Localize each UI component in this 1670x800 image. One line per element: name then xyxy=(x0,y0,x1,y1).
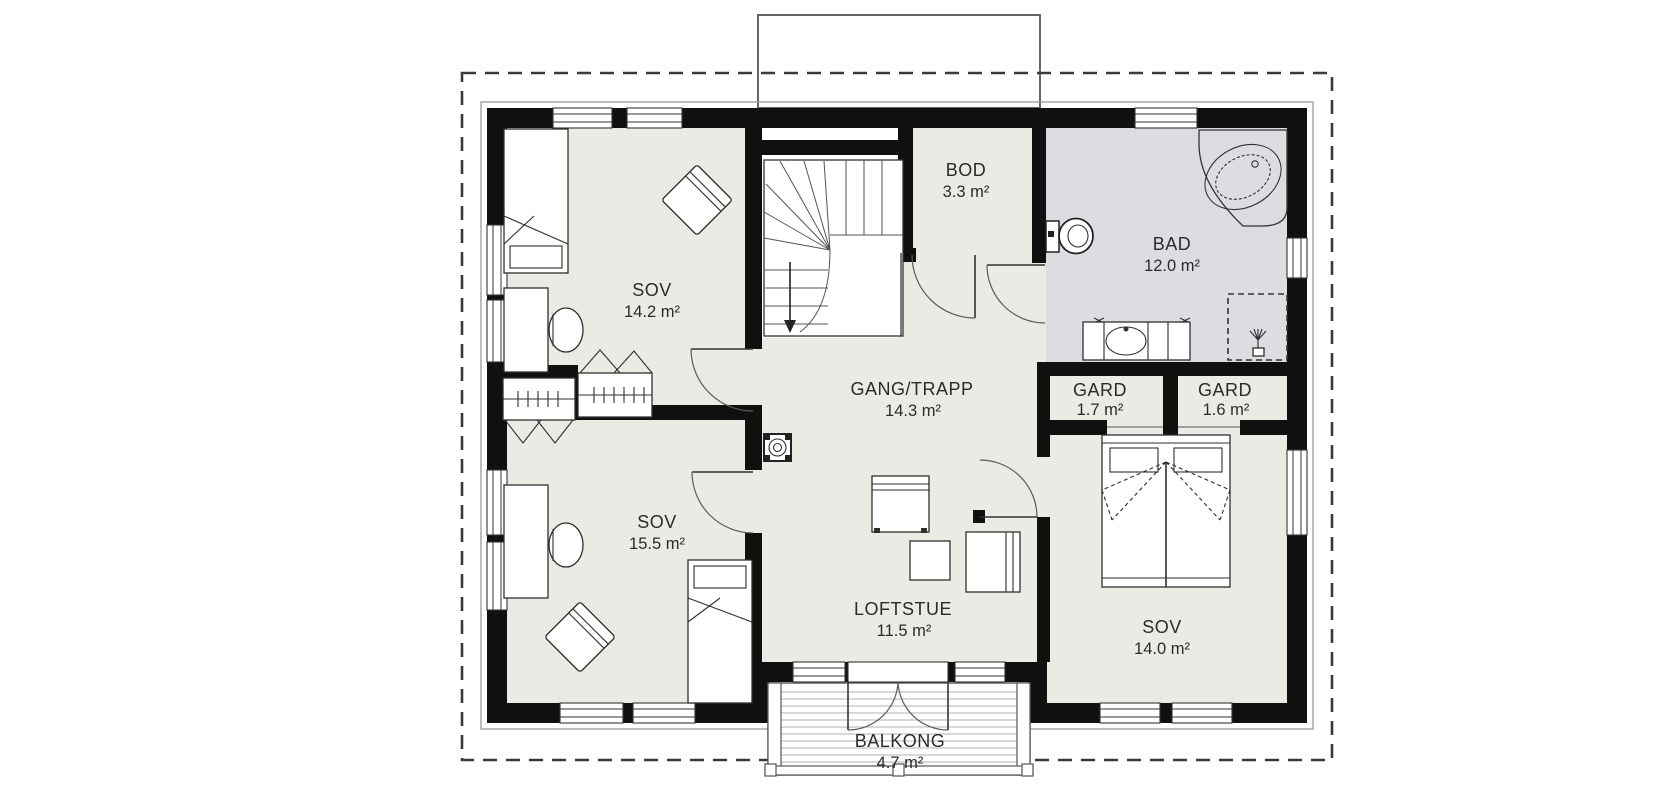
wall-gard1-west xyxy=(1037,362,1050,457)
window-sov3-east xyxy=(1287,450,1307,535)
room-label-bad-name: BAD xyxy=(1153,234,1192,254)
window-sov3-south-2 xyxy=(1172,703,1232,723)
room-label-gard1-name: GARD xyxy=(1073,380,1127,400)
desk-chair-sov2 xyxy=(549,523,583,567)
wall-jog-left xyxy=(750,662,770,723)
wall-center-upper xyxy=(745,128,762,349)
room-label-sov1-area: 14.2 m² xyxy=(624,303,680,321)
wall-bad-south xyxy=(1037,362,1287,376)
window-sov2-south-1 xyxy=(560,703,623,723)
bed-sov1 xyxy=(504,129,568,273)
wall-east xyxy=(1287,108,1307,723)
wall-bod-bad-divider xyxy=(1032,128,1046,263)
floor-plan-canvas: SOV 14.2 m² SOV 15.5 m² GANG/TRAPP 14.3 … xyxy=(0,0,1670,800)
wall-south-left xyxy=(487,703,770,723)
staircase xyxy=(764,160,903,336)
window-sov1-north-2 xyxy=(627,108,682,128)
desk-chair-sov1 xyxy=(549,308,583,352)
armchair-loftstue xyxy=(966,532,1020,592)
balcony-post-left xyxy=(765,764,776,776)
wall-gard2-south xyxy=(1240,420,1287,435)
room-label-sov1-name: SOV xyxy=(632,280,672,300)
room-label-bod-area: 3.3 m² xyxy=(943,183,990,201)
room-label-gard1-area: 1.7 m² xyxy=(1077,401,1124,419)
room-label-loftstue-area: 11.5 m² xyxy=(877,622,932,640)
toilet-fixture xyxy=(1046,219,1093,254)
sofa-loftstue xyxy=(872,476,929,533)
room-label-sov2-area: 15.5 m² xyxy=(629,535,685,553)
wall-gard1-south xyxy=(1037,420,1107,435)
floor-plan-drawing: SOV 14.2 m² SOV 15.5 m² GANG/TRAPP 14.3 … xyxy=(0,0,1670,800)
dormer-outline xyxy=(758,15,1040,108)
window-sov2-south-2 xyxy=(633,703,695,723)
room-label-balkong-area: 4.7 m² xyxy=(877,754,924,772)
room-label-sov2-name: SOV xyxy=(637,512,677,532)
window-sov1-north-1 xyxy=(553,108,612,128)
wall-gard-divider xyxy=(1163,376,1178,435)
room-label-gang-area: 14.3 m² xyxy=(885,402,941,420)
window-loftstue-south-1 xyxy=(793,662,845,682)
chimney-vent xyxy=(764,434,791,461)
room-label-bad-area: 12.0 m² xyxy=(1144,257,1200,275)
wall-stair-head xyxy=(762,140,898,155)
balcony-rail-right xyxy=(1017,683,1030,775)
room-label-gard2-area: 1.6 m² xyxy=(1203,401,1250,419)
room-label-balkong-name: BALKONG xyxy=(855,731,946,751)
room-label-bod-name: BOD xyxy=(946,160,987,180)
window-loftstue-south-2 xyxy=(955,662,1005,682)
balcony-rail-left xyxy=(768,683,781,775)
window-sov3-south-1 xyxy=(1100,703,1160,723)
room-label-loftstue-name: LOFTSTUE xyxy=(854,599,952,619)
vanity-sink xyxy=(1083,318,1190,360)
wall-jog-right xyxy=(1028,662,1047,723)
window-bad-east xyxy=(1287,238,1307,278)
double-bed-sov3 xyxy=(1102,435,1230,587)
bed-sov2 xyxy=(688,560,752,703)
room-label-gard2-name: GARD xyxy=(1198,380,1252,400)
room-label-sov3-area: 14.0 m² xyxy=(1134,640,1190,658)
balcony-post-right xyxy=(1022,764,1033,776)
side-table-loftstue xyxy=(910,541,950,580)
room-label-gang-name: GANG/TRAPP xyxy=(850,379,973,399)
window-bad-north xyxy=(1135,108,1197,128)
room-label-sov3-name: SOV xyxy=(1142,617,1182,637)
wall-south-right xyxy=(1030,703,1307,723)
wall-loftstue-sov3 xyxy=(1037,517,1050,662)
